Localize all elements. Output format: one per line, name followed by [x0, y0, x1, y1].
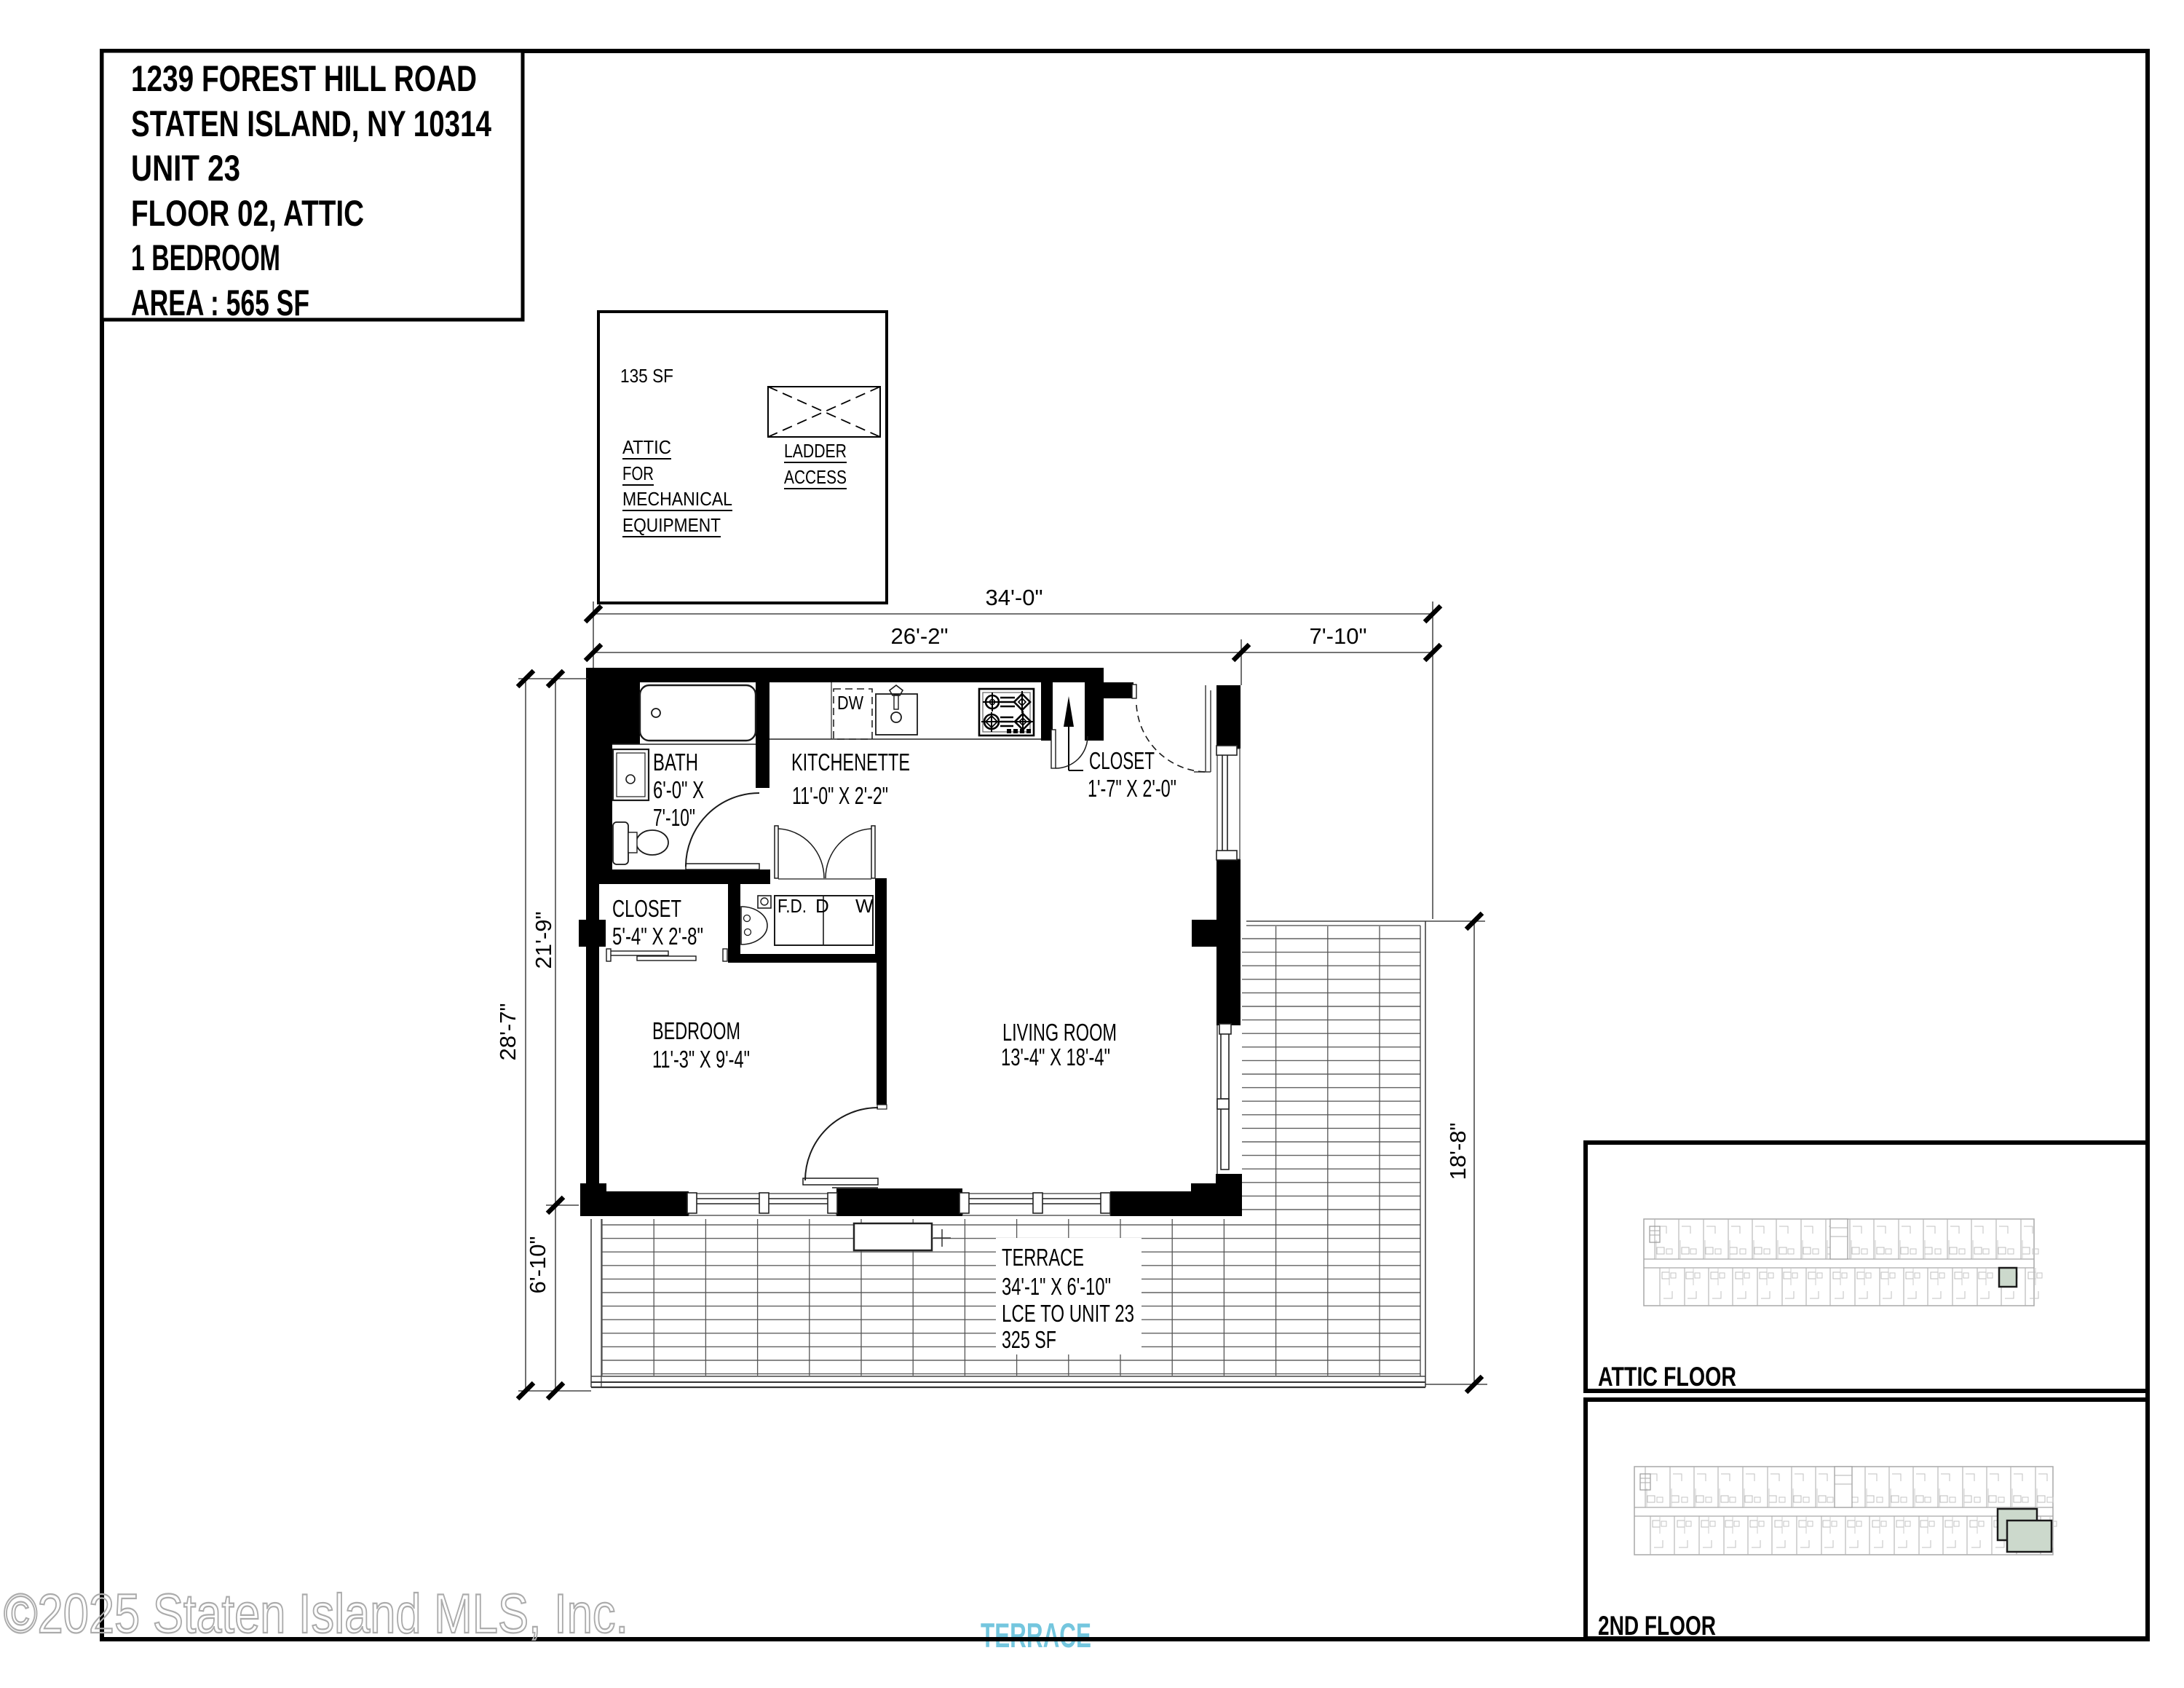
- svg-text:ACCESS: ACCESS: [784, 466, 847, 488]
- svg-text:1 BEDROOM: 1 BEDROOM: [131, 237, 280, 278]
- svg-text:5'-4" X 2'-8": 5'-4" X 2'-8": [612, 923, 703, 950]
- svg-text:BEDROOM: BEDROOM: [652, 1017, 740, 1044]
- svg-text:7'-10": 7'-10": [653, 804, 695, 831]
- svg-text:FOR: FOR: [622, 462, 654, 484]
- svg-text:ATTIC: ATTIC: [622, 436, 671, 458]
- svg-text:LIVING ROOM: LIVING ROOM: [1002, 1019, 1117, 1046]
- svg-text:UNIT 23: UNIT 23: [131, 148, 240, 189]
- svg-text:STATEN ISLAND, NY 10314: STATEN ISLAND, NY 10314: [131, 103, 491, 144]
- svg-text:W: W: [855, 895, 874, 917]
- svg-text:325 SF: 325 SF: [1002, 1326, 1056, 1353]
- svg-text:FLOOR 02, ATTIC: FLOOR 02, ATTIC: [131, 193, 364, 234]
- svg-text:DW: DW: [837, 692, 863, 714]
- svg-text:AREA : 565 SF: AREA : 565 SF: [131, 283, 309, 323]
- svg-text:2ND FLOOR: 2ND FLOOR: [1598, 1611, 1716, 1641]
- svg-text:F.D.: F.D.: [778, 895, 807, 917]
- svg-text:11'-0" X 2'-2": 11'-0" X 2'-2": [792, 782, 888, 809]
- svg-text:135 SF: 135 SF: [620, 365, 673, 387]
- svg-text:MECHANICAL: MECHANICAL: [622, 488, 732, 510]
- svg-text:©2025 Staten Island MLS, Inc.: ©2025 Staten Island MLS, Inc.: [4, 1583, 628, 1645]
- svg-text:34'-1" X 6'-10": 34'-1" X 6'-10": [1002, 1273, 1111, 1300]
- svg-text:21'-9": 21'-9": [531, 912, 556, 969]
- svg-text:18'-8": 18'-8": [1445, 1123, 1471, 1180]
- svg-text:CLOSET: CLOSET: [1089, 747, 1155, 774]
- svg-text:D: D: [815, 895, 829, 917]
- svg-text:BATH: BATH: [653, 749, 698, 776]
- svg-text:EQUIPMENT: EQUIPMENT: [622, 514, 721, 536]
- svg-text:6'-0" X: 6'-0" X: [653, 776, 704, 803]
- svg-text:LADDER: LADDER: [784, 440, 847, 462]
- svg-text:26'-2": 26'-2": [891, 623, 949, 649]
- svg-text:1'-7" X 2'-0": 1'-7" X 2'-0": [1088, 775, 1176, 802]
- svg-text:LCE TO UNIT 23: LCE TO UNIT 23: [1002, 1300, 1134, 1327]
- svg-text:34'-0": 34'-0": [986, 585, 1043, 610]
- svg-text:1239 FOREST HILL ROAD: 1239 FOREST HILL ROAD: [131, 58, 477, 99]
- svg-text:KITCHENETTE: KITCHENETTE: [791, 749, 910, 776]
- svg-text:13'-4" X 18'-4": 13'-4" X 18'-4": [1001, 1044, 1110, 1070]
- svg-text:11'-3" X 9'-4": 11'-3" X 9'-4": [652, 1046, 750, 1073]
- svg-text:ATTIC FLOOR: ATTIC FLOOR: [1598, 1362, 1736, 1392]
- svg-text:CLOSET: CLOSET: [612, 895, 681, 922]
- svg-text:7'-10": 7'-10": [1310, 623, 1367, 649]
- svg-text:28'-7": 28'-7": [495, 1003, 521, 1061]
- svg-text:TERRACE: TERRACE: [1002, 1244, 1084, 1271]
- svg-text:TERRACE: TERRACE: [981, 1616, 1091, 1655]
- svg-text:6'-10": 6'-10": [525, 1237, 550, 1294]
